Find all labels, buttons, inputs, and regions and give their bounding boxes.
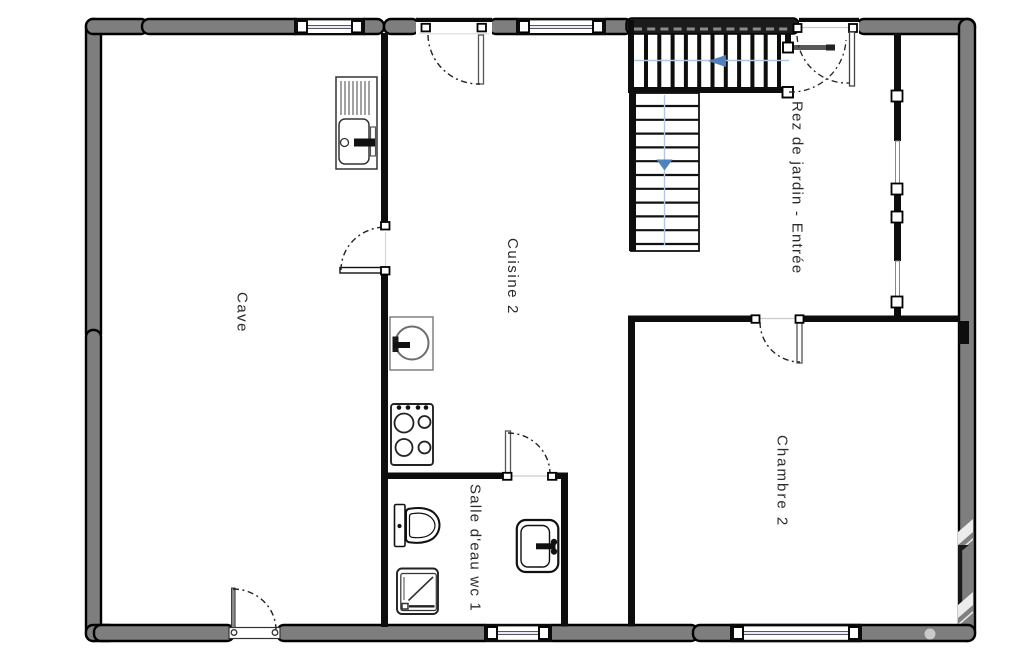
svg-text:Rez de jardin - Entrée: Rez de jardin - Entrée <box>789 101 806 274</box>
svg-text:Chambre 2: Chambre 2 <box>774 435 791 527</box>
svg-text:Cuisine 2: Cuisine 2 <box>504 238 521 315</box>
svg-text:Cave: Cave <box>234 292 251 333</box>
svg-text:Salle d'eau wc 1: Salle d'eau wc 1 <box>467 484 484 612</box>
